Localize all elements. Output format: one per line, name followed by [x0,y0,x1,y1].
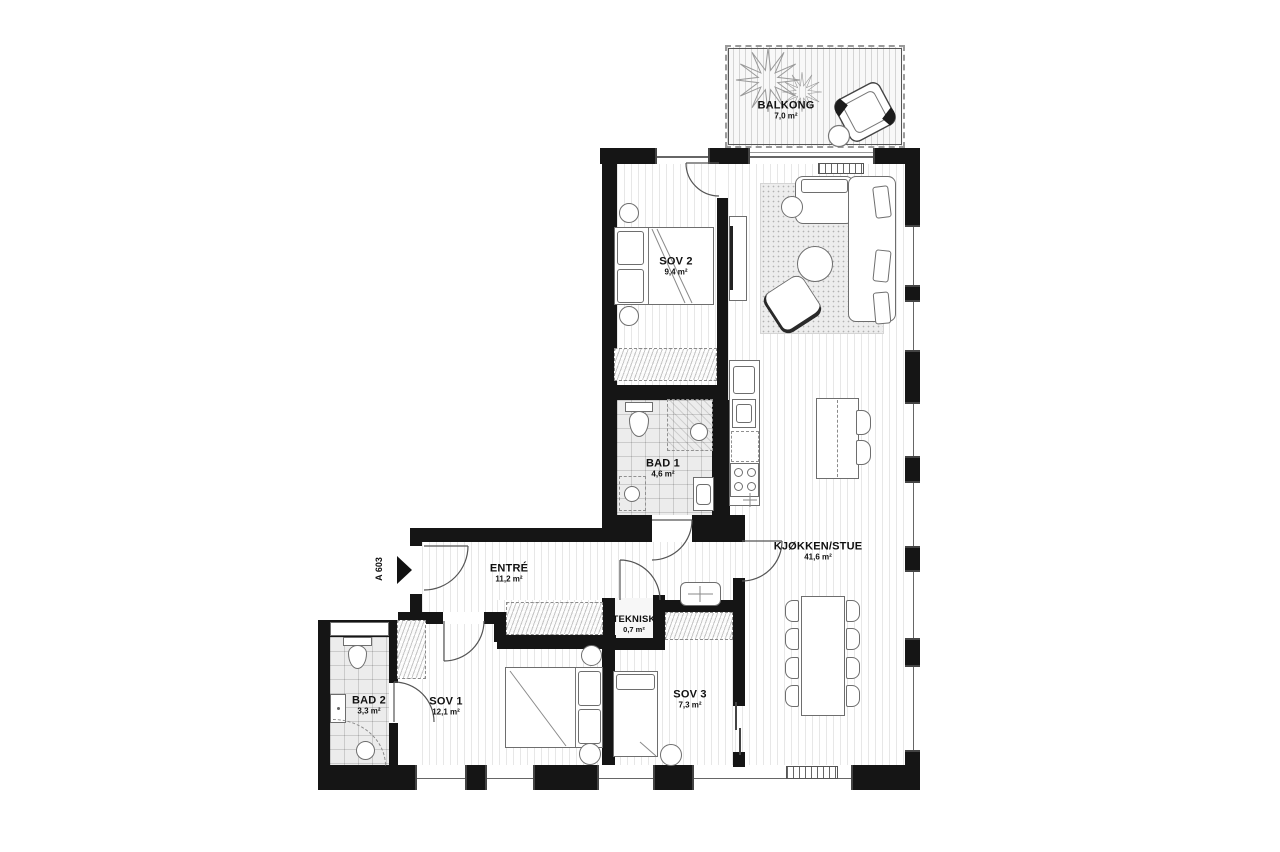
window [905,570,920,640]
kitchen-sink-basin [736,404,752,423]
dishwasher-icon [731,431,759,462]
room-label-sov1: SOV 1 12,1 m² [429,696,462,717]
unit-label: A 603 [374,547,386,591]
window [485,765,535,790]
pillow-icon [617,269,644,303]
nightstand-icon [581,645,602,666]
wall-segment [905,458,920,481]
pillow-icon [578,709,601,744]
room-name: SOV 2 [659,256,692,268]
side-table-icon [781,196,803,218]
room-name: BAD 1 [646,458,680,470]
shower-head-icon [690,423,708,441]
wall-segment [905,287,920,300]
radiator-icon [818,163,864,174]
balcony-railing [725,45,905,148]
wall-segment [604,515,652,542]
sofa-pillow-icon [873,291,892,324]
room-name: KJØKKEN/STUE [774,541,863,553]
pillow-icon [617,231,644,265]
burner-icon [734,468,743,477]
dining-chair-icon [846,657,860,679]
room-area: 7,0 m² [757,112,814,121]
nightstand-icon [619,203,639,223]
dining-chair-icon [785,657,799,679]
shower-icon [667,399,713,451]
bar-stool-icon [856,410,871,435]
wall-segment [692,515,745,542]
wall-segment [905,163,920,225]
wall-segment [410,542,422,546]
room-area: 7,3 m² [673,701,706,710]
sofa-cushion-icon [801,179,848,193]
room-label-sov3: SOV 3 7,3 m² [673,689,706,710]
window [415,765,467,790]
wall-segment [733,752,745,767]
entrance-arrow-icon [397,556,412,584]
room-name: ENTRÉ [490,563,528,575]
sink-basin-icon [624,486,640,502]
bench-icon [680,582,721,606]
bathroom-shelf-icon [330,622,389,636]
wall-segment [602,148,617,542]
room-label-bad2: BAD 2 3,3 m² [352,695,386,716]
wall-segment [535,765,597,790]
pillow-icon [578,671,601,706]
floor-plan: BALKONG 7,0 m² SOV 2 9,4 m² BAD 1 4,6 m²… [0,0,1280,852]
dining-table-icon [801,596,845,716]
room-label-teknisk: TEKNISK 0,7 m² [612,614,655,634]
nightstand-icon [619,306,639,326]
radiator-icon [786,766,838,779]
wall-segment [318,765,415,790]
burner-icon [734,482,743,491]
wall-segment [410,528,616,542]
dining-chair-icon [785,600,799,622]
room-area: 3,3 m² [352,707,386,716]
window [905,665,920,752]
wall-segment [389,723,398,765]
wardrobe-entre [506,602,603,635]
wall-segment [467,765,485,790]
island-centerline [837,400,838,477]
dining-chair-icon [846,600,860,622]
room-label-bad1: BAD 1 4,6 m² [646,458,680,479]
window [905,225,920,287]
room-label-balkong: BALKONG 7,0 m² [757,100,814,121]
wall-segment [712,400,730,515]
tv-icon [730,226,733,290]
wall-segment [875,148,920,164]
wall-segment [655,765,692,790]
wall-segment [710,148,748,164]
bar-stool-icon [856,440,871,465]
shower-drain-icon [356,741,375,760]
room-name: BALKONG [757,100,814,112]
dining-chair-icon [785,685,799,707]
room-area: 0,7 m² [612,625,655,634]
stove-icon [730,463,759,497]
window [655,148,710,164]
room-area: 41,6 m² [774,553,863,562]
room-label-sov2: SOV 2 9,4 m² [659,256,692,277]
dining-chair-icon [846,685,860,707]
burner-icon [747,468,756,477]
bed-divider-line [648,228,649,304]
burner-icon [747,482,756,491]
wall-segment [604,385,718,400]
fridge-icon [733,366,755,394]
wall-segment [905,352,920,402]
wall-segment [717,198,728,400]
dining-chair-icon [846,628,860,650]
wall-segment [853,765,920,790]
room-name: SOV 3 [673,689,706,701]
window [905,402,920,458]
sofa-pillow-icon [872,249,891,282]
window [597,765,655,790]
nightstand-icon [579,743,601,765]
room-area: 11,2 m² [490,575,528,584]
pillow-icon [616,674,655,690]
sink-drain-dot [337,707,340,710]
wardrobe-sov3 [665,612,733,640]
balcony-sliding-door [748,148,875,164]
room-area: 12,1 m² [429,708,462,717]
room-label-kjokken-stue: KJØKKEN/STUE 41,6 m² [774,541,863,562]
room-area: 4,6 m² [646,470,680,479]
wall-segment [905,548,920,570]
room-name: TEKNISK [612,614,655,625]
wall-segment [733,578,745,706]
room-name: BAD 2 [352,695,386,707]
window [905,481,920,548]
wall-segment [318,620,330,790]
washing-machine-door [696,484,711,505]
room-name: SOV 1 [429,696,462,708]
window [905,300,920,352]
side-table-icon [660,744,682,766]
wardrobe-sov1 [397,620,426,679]
wardrobe-sov2 [614,348,717,381]
bed-divider-line [575,668,576,747]
dining-chair-icon [785,628,799,650]
room-area: 9,4 m² [659,268,692,277]
wall-segment [602,638,665,650]
room-label-entre: ENTRÉ 11,2 m² [490,563,528,584]
wall-segment [905,640,920,665]
